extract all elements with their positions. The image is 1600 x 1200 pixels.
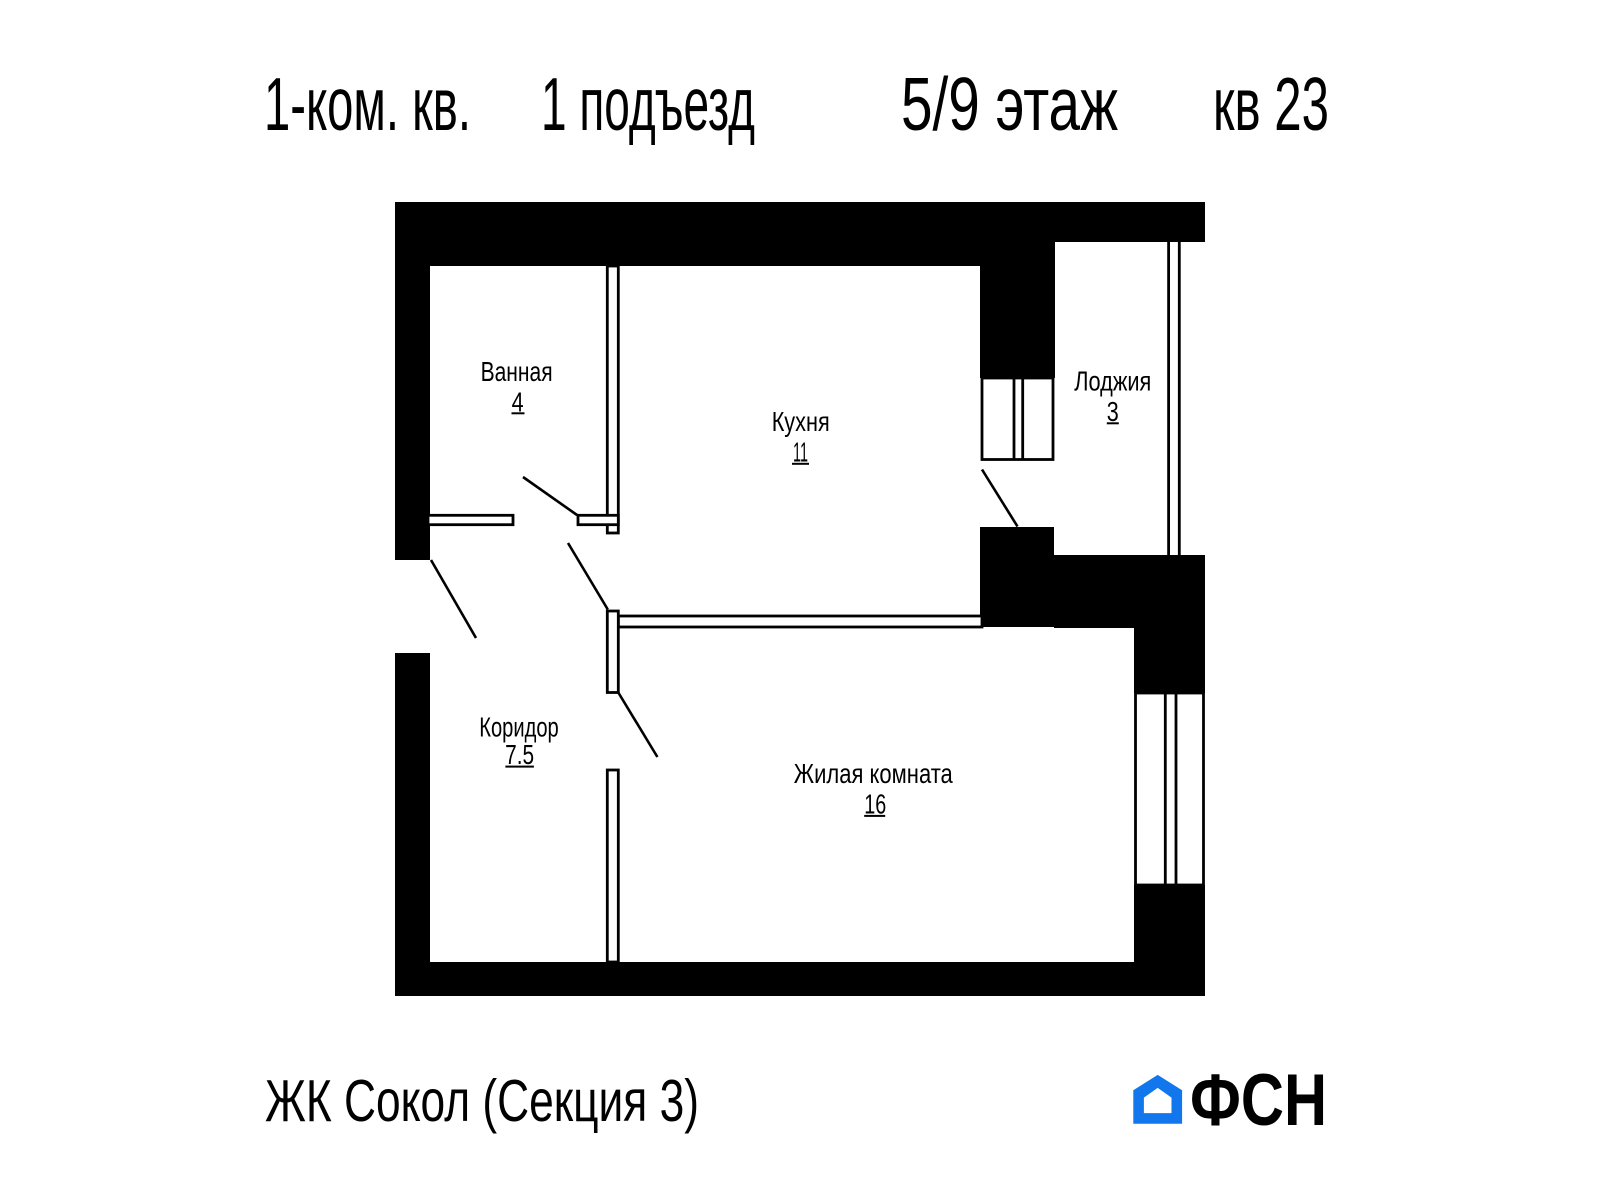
svg-text:1-ком. кв.: 1-ком. кв.: [264, 62, 471, 146]
svg-text:3: 3: [1107, 396, 1119, 427]
svg-text:5/9 этаж: 5/9 этаж: [901, 62, 1118, 146]
svg-text:1 подъезд: 1 подъезд: [541, 62, 755, 146]
svg-text:Коридор: Коридор: [479, 711, 559, 742]
svg-text:11: 11: [793, 436, 808, 467]
svg-text:ФСН: ФСН: [1190, 1060, 1327, 1141]
svg-text:7.5: 7.5: [505, 739, 534, 770]
svg-text:Ванная: Ванная: [481, 356, 553, 387]
svg-text:Лоджия: Лоджия: [1074, 366, 1151, 397]
svg-text:Жилая комната: Жилая комната: [794, 758, 954, 789]
svg-text:Кухня: Кухня: [772, 406, 830, 437]
svg-text:кв 23: кв 23: [1213, 62, 1329, 146]
svg-text:ЖК Сокол (Секция 3): ЖК Сокол (Секция 3): [265, 1068, 699, 1134]
svg-text:16: 16: [864, 789, 886, 820]
